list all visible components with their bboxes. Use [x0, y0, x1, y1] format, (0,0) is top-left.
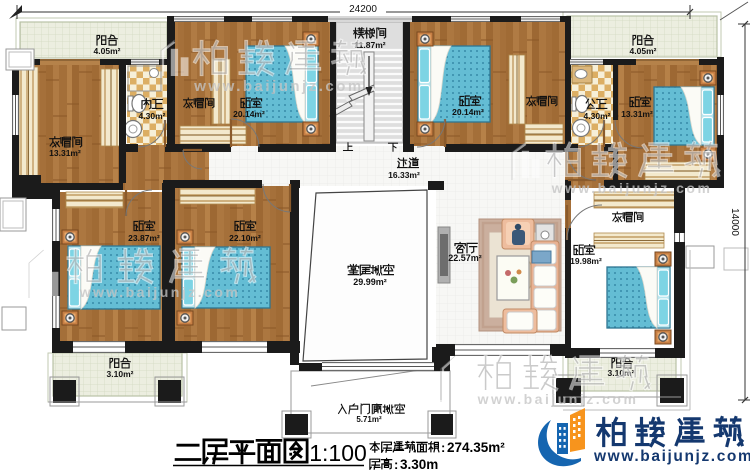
svg-text:22.57m²: 22.57m² — [448, 253, 482, 263]
svg-text:www.baijunjz.com: www.baijunjz.com — [593, 448, 750, 465]
svg-text:22.10m²: 22.10m² — [229, 233, 261, 243]
svg-text:3.30m: 3.30m — [400, 457, 438, 472]
svg-text:www.baijunjz.com: www.baijunjz.com — [193, 78, 363, 95]
svg-text:4.30m²: 4.30m² — [139, 111, 166, 121]
svg-text:23.87m²: 23.87m² — [128, 233, 160, 243]
svg-text:274.35m²: 274.35m² — [447, 440, 505, 455]
svg-text:13.31m²: 13.31m² — [49, 148, 81, 158]
svg-text:19.98m²: 19.98m² — [570, 256, 602, 266]
svg-text::: : — [394, 457, 398, 472]
svg-text:16.33m²: 16.33m² — [388, 170, 420, 180]
svg-text:20.14m²: 20.14m² — [452, 107, 484, 117]
svg-text:www.baijunjz.com: www.baijunjz.com — [477, 391, 639, 407]
svg-text:24200: 24200 — [349, 4, 377, 15]
svg-text:13.31m²: 13.31m² — [621, 109, 653, 119]
svg-text:29.99m²: 29.99m² — [353, 277, 387, 287]
svg-text:4.05m²: 4.05m² — [630, 46, 657, 56]
svg-text:3.10m²: 3.10m² — [107, 369, 134, 379]
svg-text:4.30m²: 4.30m² — [584, 111, 611, 121]
svg-text::: : — [441, 440, 445, 455]
svg-text:1:100: 1:100 — [309, 440, 367, 466]
svg-text:www.baijunjz.com: www.baijunjz.com — [551, 180, 713, 196]
svg-text:14000: 14000 — [729, 208, 740, 236]
svg-text:www.baijunjz.com: www.baijunjz.com — [79, 284, 241, 300]
svg-text:4.05m²: 4.05m² — [94, 46, 121, 56]
svg-text:20.14m²: 20.14m² — [233, 109, 265, 119]
svg-text:5.71m²: 5.71m² — [356, 415, 382, 424]
